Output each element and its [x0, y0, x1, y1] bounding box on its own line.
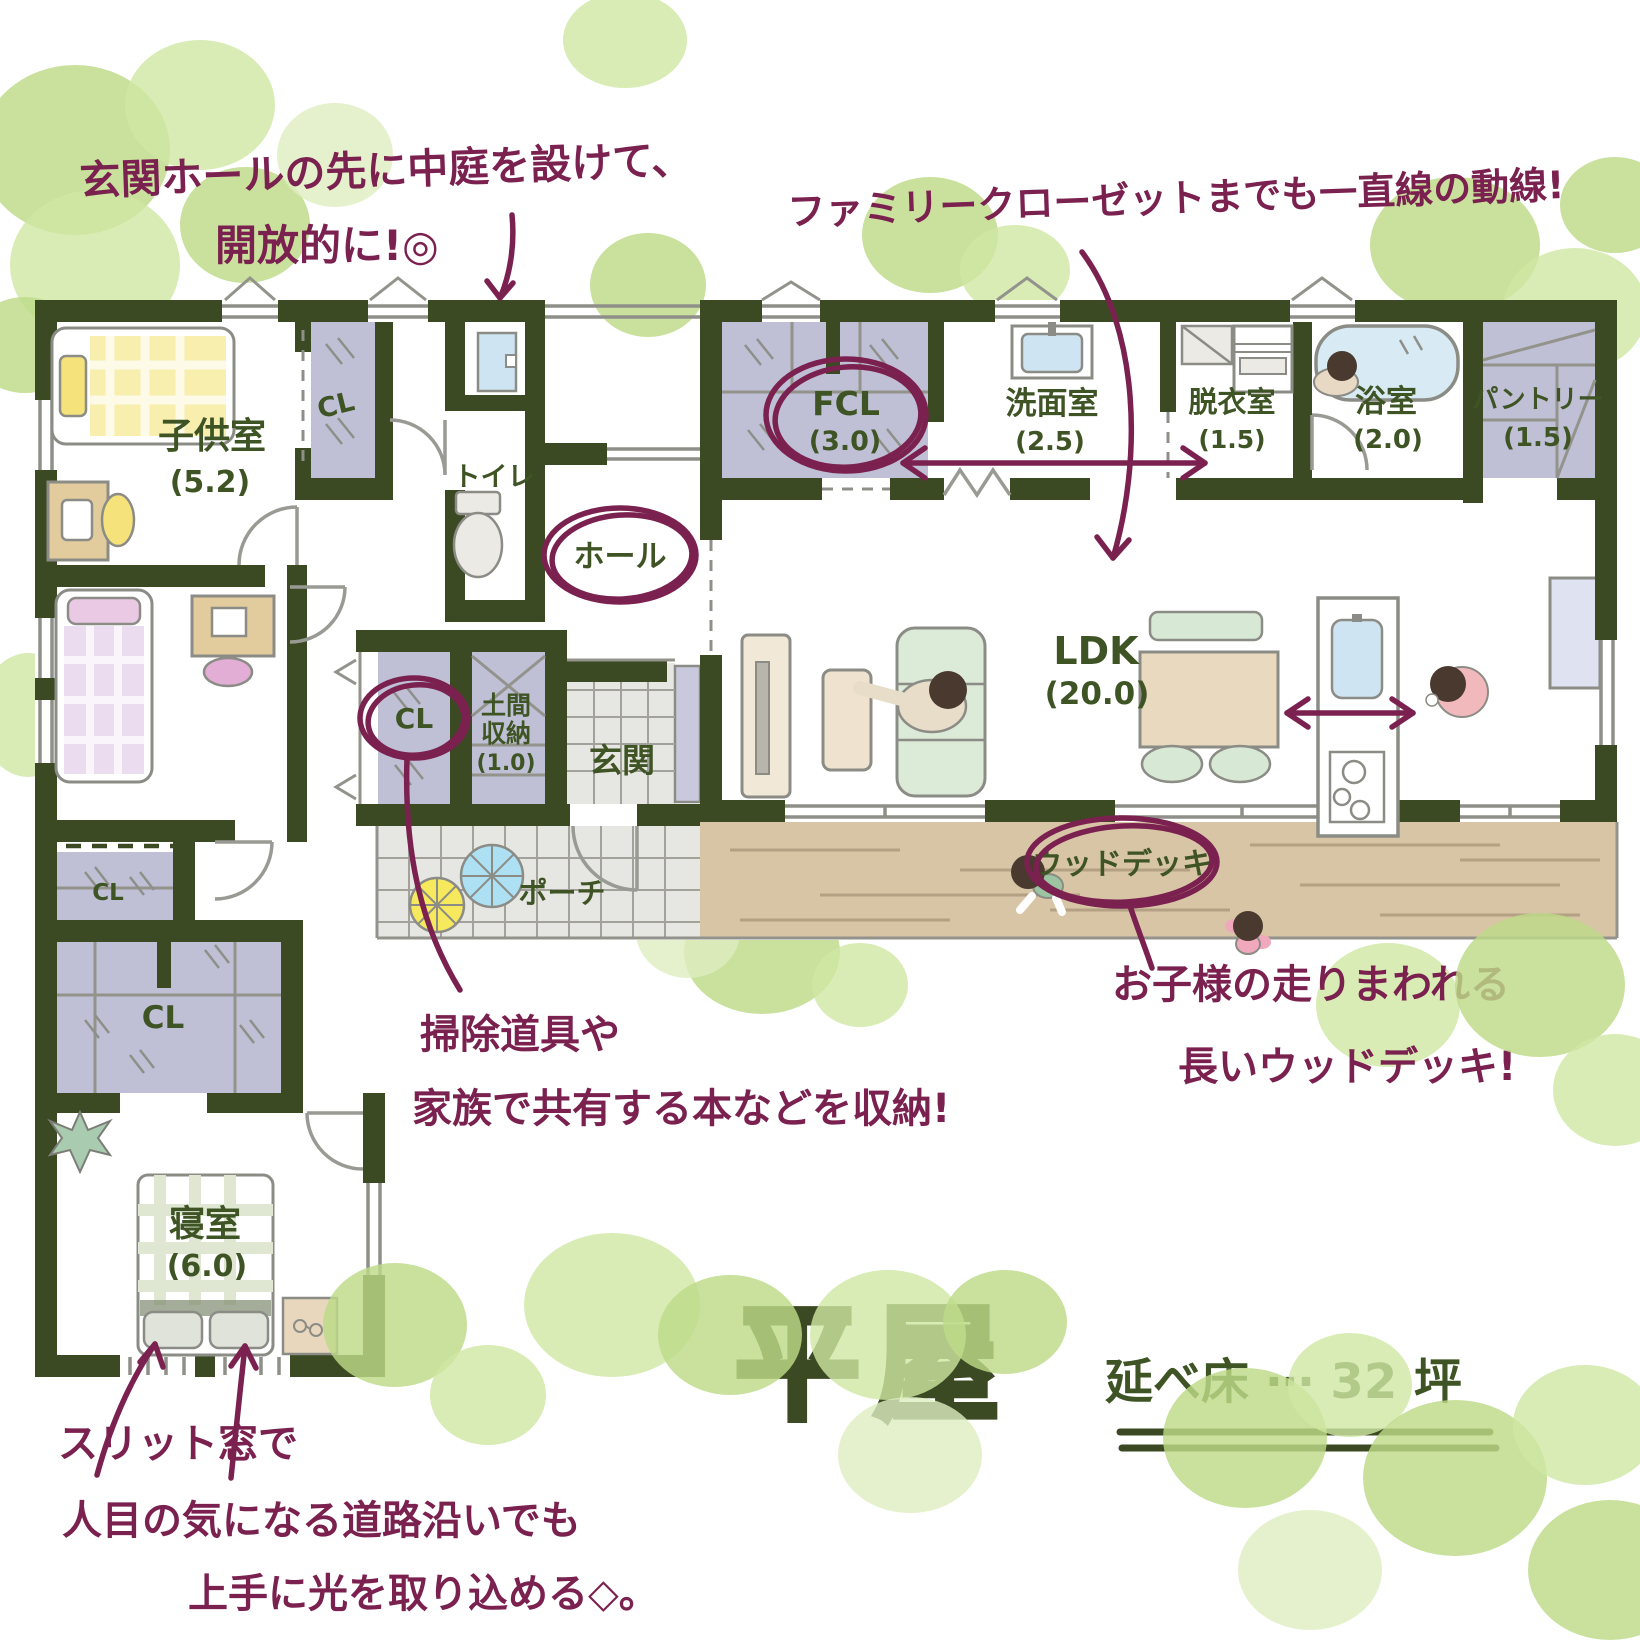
umbrella-blue: [461, 845, 523, 907]
door-handle: [506, 355, 516, 367]
label-toilet: トイレ: [454, 462, 535, 493]
label-ldk-size: (20.0): [1045, 676, 1150, 712]
label-washroom: 洗面室: [1006, 386, 1099, 422]
note-slit-line1: スリット窓で: [58, 1421, 298, 1467]
label-cl4: CL: [142, 1000, 185, 1036]
note-storage-line1: 掃除道具や: [420, 1012, 620, 1058]
label-fcl: FCL: [812, 384, 880, 423]
label-ldk: LDK: [1053, 629, 1140, 673]
label-pantry: パントリー: [1472, 385, 1603, 415]
label-doma-size: (1.0): [476, 751, 535, 776]
label-bedroom: 寝室: [169, 1203, 241, 1245]
label-dressing: 脱衣室: [1188, 385, 1275, 419]
note-deck-line1: お子様の走りまわれる: [1112, 962, 1510, 1008]
note-slit-line3: 上手に光を取り込める◇。: [188, 1571, 659, 1617]
label-cl2: CL: [395, 702, 434, 735]
label-hall: ホール: [574, 539, 667, 575]
note-deck-line2: 長いウッドデッキ!: [1178, 1044, 1516, 1090]
fridge: [1550, 578, 1600, 688]
label-doma-line2: 収納: [481, 719, 531, 748]
bed-kids2: [56, 590, 152, 782]
label-dressing-size: (1.5): [1198, 425, 1265, 454]
hand-drawn-floorplan: 子供室 (5.2) CL トイレ FCL (3.0) 洗面室 (2.5) 脱衣室…: [0, 0, 1640, 1640]
label-pantry-size: (1.5): [1503, 423, 1573, 453]
label-porch: ポーチ: [518, 876, 605, 910]
label-fcl-size: (3.0): [809, 426, 882, 457]
note-slit-line2: 人目の気になる道路沿いでも: [62, 1498, 581, 1544]
toilet-fixture: [454, 492, 502, 577]
label-doma-line1: 土間: [481, 691, 531, 720]
tv-board: [742, 635, 790, 797]
note-storage-line2: 家族で共有する本などを収納!: [412, 1086, 950, 1132]
label-kids-room-1: 子供室: [158, 416, 266, 457]
kitchen-counter: [1318, 598, 1398, 836]
label-washroom-size: (2.5): [1015, 427, 1085, 457]
label-genkan: 玄関: [589, 741, 655, 780]
label-bath: 浴室: [1355, 384, 1417, 420]
arrow-courtyard: [487, 215, 513, 298]
label-wood-deck: ウッドデッキ: [1032, 847, 1212, 882]
label-kids-room-1-size: (5.2): [170, 465, 251, 500]
washroom-sink: [1012, 322, 1092, 378]
label-bath-size: (2.0): [1353, 425, 1423, 455]
floorplan-canvas: 子供室 (5.2) CL トイレ FCL (3.0) 洗面室 (2.5) 脱衣室…: [0, 0, 1640, 1640]
shoe-cabinet: [675, 666, 700, 802]
label-bedroom-size: (6.0): [167, 1249, 248, 1284]
label-cl3: CL: [92, 880, 124, 906]
note-courtyard-line2: 開放的に!◎: [215, 221, 439, 270]
